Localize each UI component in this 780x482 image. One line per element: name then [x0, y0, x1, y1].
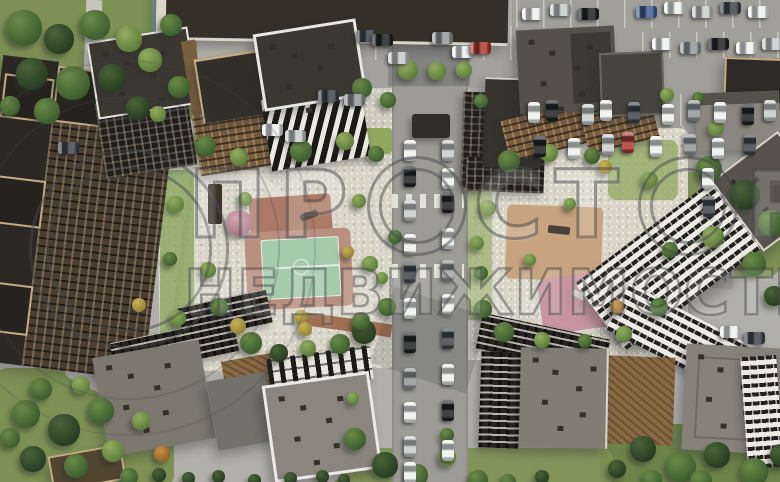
car [404, 140, 416, 161]
car [568, 138, 580, 159]
car [442, 168, 454, 189]
car [404, 166, 416, 187]
car [404, 402, 416, 423]
car [528, 102, 540, 123]
car [404, 436, 416, 457]
car [662, 104, 674, 125]
car [442, 440, 454, 461]
car [702, 168, 714, 189]
car [285, 130, 306, 142]
car [650, 136, 662, 157]
car [636, 6, 657, 18]
car [432, 32, 453, 44]
car [442, 140, 454, 161]
car [688, 100, 700, 121]
car [442, 328, 454, 349]
car [744, 134, 756, 155]
car [582, 104, 594, 125]
car [404, 262, 416, 283]
car [442, 260, 454, 281]
car [404, 332, 416, 353]
car [546, 100, 558, 121]
car [600, 100, 612, 121]
car [404, 200, 416, 221]
car [470, 42, 491, 54]
car [736, 42, 757, 54]
car [748, 6, 769, 18]
aerial-masterplan-render: ПР СТ Р НЕДВИЖИМОСТЬ [0, 0, 780, 482]
car [622, 132, 634, 153]
car [664, 2, 685, 14]
car [703, 196, 715, 217]
car [708, 38, 729, 50]
car [742, 104, 754, 125]
car [404, 234, 416, 255]
car [442, 192, 454, 213]
car [404, 298, 416, 319]
car [744, 332, 765, 344]
car [58, 142, 79, 154]
car [578, 8, 599, 20]
car [712, 138, 724, 159]
car [602, 134, 614, 155]
cars-layer [0, 0, 780, 482]
car [372, 34, 393, 46]
car [442, 228, 454, 249]
car [262, 124, 283, 136]
car [344, 94, 365, 106]
car [442, 294, 454, 315]
car [714, 102, 726, 123]
car [720, 2, 741, 14]
car [764, 100, 776, 121]
car [404, 368, 416, 389]
car [442, 364, 454, 385]
car [684, 134, 696, 155]
car [442, 400, 454, 421]
car [680, 42, 701, 54]
car [628, 102, 640, 123]
car [762, 38, 780, 50]
car [652, 38, 673, 50]
car [534, 136, 546, 157]
car [692, 6, 713, 18]
car [720, 326, 741, 338]
car [318, 90, 339, 102]
car [404, 462, 416, 482]
car [550, 4, 571, 16]
car [522, 8, 543, 20]
car [388, 52, 409, 64]
